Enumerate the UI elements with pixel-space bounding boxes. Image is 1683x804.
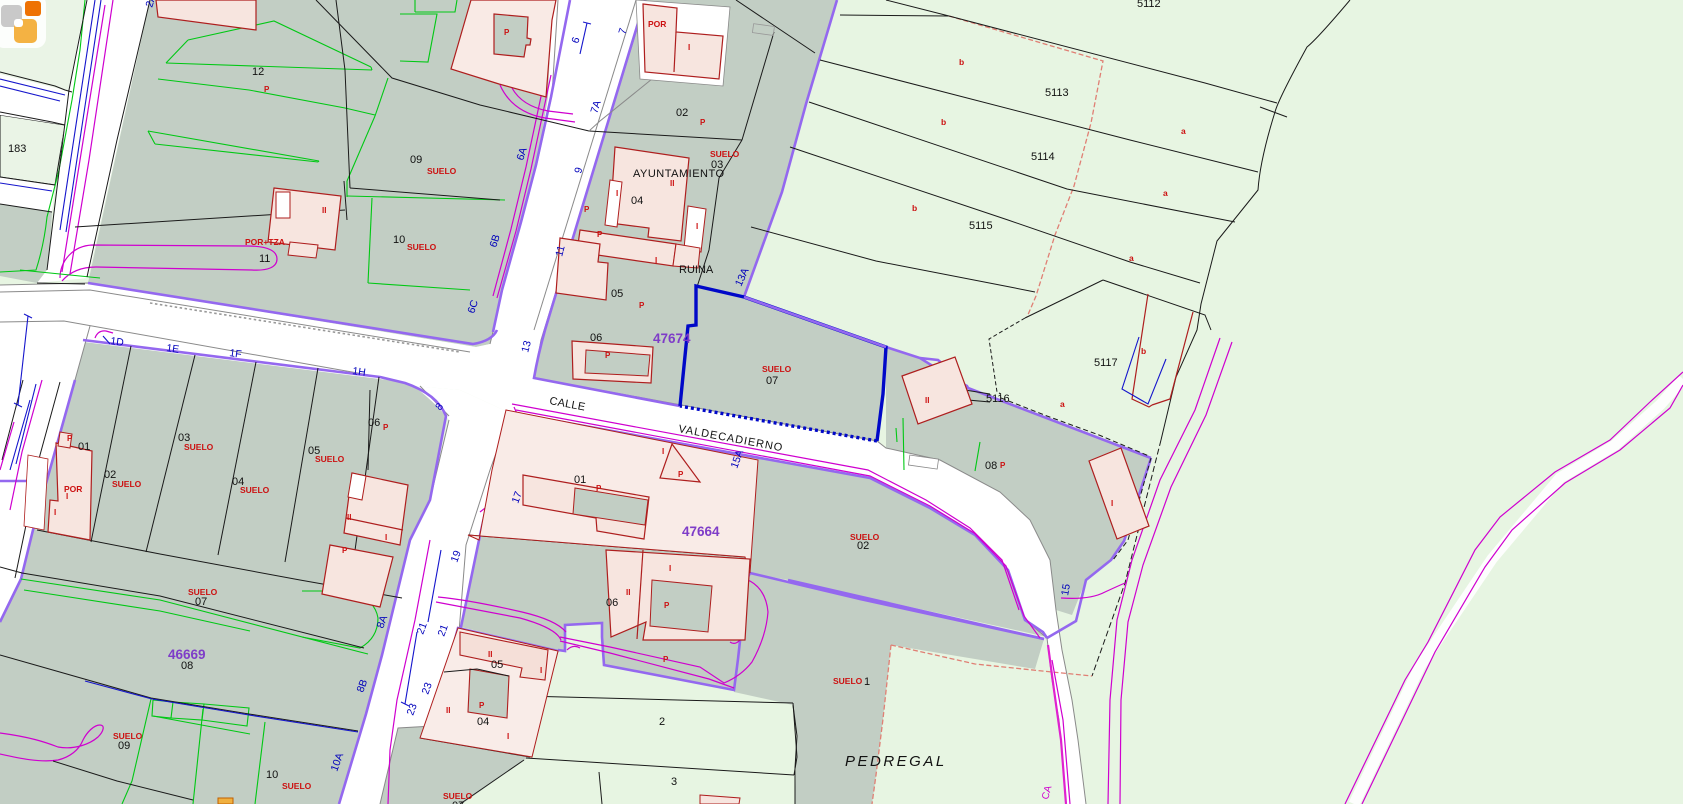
svg-text:06: 06 — [368, 417, 380, 429]
svg-text:10: 10 — [393, 234, 405, 246]
svg-text:P: P — [342, 546, 348, 555]
svg-text:3: 3 — [671, 776, 677, 788]
svg-text:b: b — [941, 117, 946, 127]
svg-text:10: 10 — [266, 769, 278, 781]
svg-text:SUELO: SUELO — [112, 479, 142, 489]
svg-text:POR: POR — [648, 19, 666, 29]
svg-text:1F: 1F — [229, 347, 243, 361]
svg-text:07: 07 — [452, 800, 464, 804]
svg-text:1: 1 — [864, 676, 870, 688]
svg-text:P: P — [663, 655, 669, 664]
svg-text:I: I — [54, 508, 56, 517]
svg-text:08: 08 — [985, 460, 997, 472]
svg-text:5113: 5113 — [1045, 87, 1069, 99]
svg-text:P: P — [504, 28, 510, 37]
svg-text:II: II — [446, 706, 450, 715]
svg-text:SUELO: SUELO — [282, 781, 312, 791]
svg-text:05: 05 — [611, 288, 623, 300]
svg-text:12: 12 — [252, 66, 264, 78]
svg-text:II: II — [322, 206, 326, 215]
svg-text:PEDREGAL: PEDREGAL — [845, 753, 947, 770]
svg-text:11: 11 — [259, 253, 270, 265]
svg-text:SUELO: SUELO — [240, 485, 270, 495]
svg-text:RUINA: RUINA — [679, 264, 714, 276]
svg-text:02: 02 — [857, 540, 869, 552]
svg-text:5115: 5115 — [969, 220, 993, 232]
svg-text:2: 2 — [659, 716, 665, 728]
svg-text:SUELO: SUELO — [315, 454, 345, 464]
svg-text:P: P — [639, 301, 645, 310]
svg-text:08: 08 — [181, 660, 193, 672]
svg-text:I: I — [66, 492, 68, 501]
svg-text:1D: 1D — [110, 335, 125, 349]
svg-text:1E: 1E — [166, 342, 180, 356]
svg-text:b: b — [1141, 346, 1146, 356]
svg-text:04: 04 — [477, 716, 489, 728]
svg-text:P: P — [1000, 461, 1006, 470]
svg-text:P: P — [700, 118, 706, 127]
svg-text:09: 09 — [410, 154, 422, 166]
svg-text:a: a — [1163, 188, 1168, 198]
svg-text:I: I — [688, 43, 690, 52]
svg-text:I: I — [1111, 499, 1113, 508]
svg-text:SUELO: SUELO — [710, 149, 740, 159]
svg-text:I: I — [696, 222, 698, 231]
svg-text:P: P — [678, 470, 684, 479]
svg-text:09: 09 — [118, 740, 130, 752]
svg-text:P: P — [383, 423, 389, 432]
svg-text:01: 01 — [574, 474, 586, 486]
svg-text:II: II — [347, 513, 351, 522]
svg-text:07: 07 — [766, 375, 778, 387]
svg-text:b: b — [959, 57, 964, 67]
svg-text:05: 05 — [491, 659, 503, 671]
svg-text:5112: 5112 — [1137, 0, 1161, 10]
svg-text:AYUNTAMIENTO: AYUNTAMIENTO — [633, 168, 725, 180]
svg-text:a: a — [1060, 399, 1065, 409]
svg-text:P: P — [605, 351, 611, 360]
svg-text:I: I — [540, 666, 542, 675]
svg-text:47664: 47664 — [682, 524, 720, 539]
svg-text:04: 04 — [631, 195, 643, 207]
svg-text:I: I — [385, 533, 387, 542]
svg-text:5116: 5116 — [986, 393, 1010, 405]
svg-text:02: 02 — [676, 107, 688, 119]
svg-text:a: a — [1129, 253, 1134, 263]
svg-text:II: II — [488, 650, 492, 659]
svg-text:P: P — [596, 484, 602, 493]
svg-text:II: II — [626, 588, 630, 597]
svg-text:183: 183 — [8, 143, 26, 155]
svg-text:47674: 47674 — [653, 331, 691, 346]
svg-text:15: 15 — [1059, 583, 1073, 597]
svg-text:II: II — [670, 179, 674, 188]
svg-text:SUELO: SUELO — [762, 364, 792, 374]
svg-text:5114: 5114 — [1031, 151, 1055, 163]
svg-text:II: II — [925, 396, 929, 405]
svg-text:1H: 1H — [352, 365, 367, 379]
svg-text:b: b — [912, 203, 917, 213]
svg-text:SUELO: SUELO — [833, 676, 863, 686]
svg-text:P: P — [664, 601, 670, 610]
svg-text:5117: 5117 — [1094, 357, 1118, 369]
svg-text:I: I — [616, 189, 618, 198]
svg-text:01: 01 — [78, 441, 90, 453]
svg-text:a: a — [1181, 126, 1186, 136]
svg-text:06: 06 — [606, 597, 618, 609]
svg-text:P: P — [584, 205, 590, 214]
svg-text:P: P — [479, 701, 485, 710]
svg-text:I: I — [655, 256, 657, 265]
svg-text:06: 06 — [590, 332, 602, 344]
svg-text:07: 07 — [195, 596, 207, 608]
svg-text:P: P — [264, 85, 270, 94]
svg-text:P: P — [67, 434, 73, 443]
svg-text:I: I — [669, 564, 671, 573]
svg-text:SUELO: SUELO — [407, 242, 437, 252]
svg-text:P: P — [597, 230, 603, 239]
svg-text:SUELO: SUELO — [184, 442, 214, 452]
svg-text:I: I — [662, 447, 664, 456]
svg-text:SUELO: SUELO — [427, 166, 457, 176]
svg-text:POR+TZA: POR+TZA — [245, 237, 285, 247]
svg-text:I: I — [507, 732, 509, 741]
